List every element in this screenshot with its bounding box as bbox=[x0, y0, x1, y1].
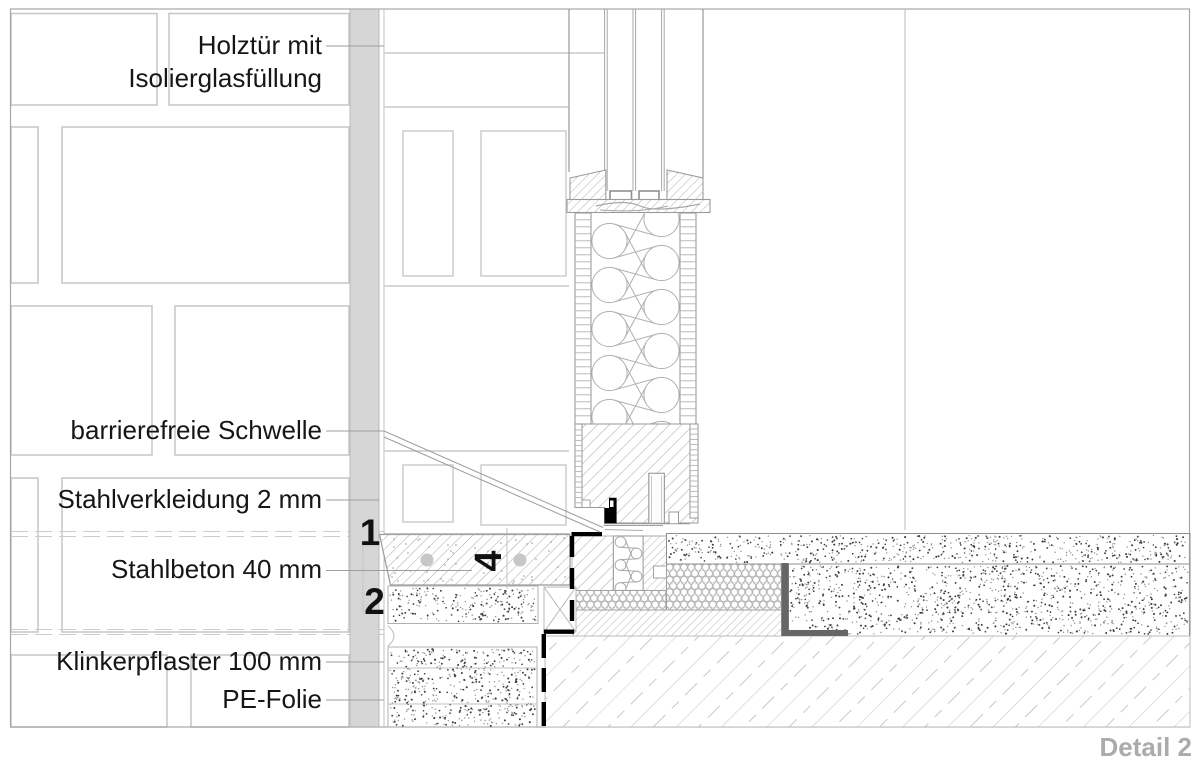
svg-text:1: 1 bbox=[360, 512, 381, 553]
svg-text:Detail 2: Detail 2 bbox=[1100, 732, 1193, 762]
svg-text:4: 4 bbox=[468, 550, 510, 571]
svg-text:Holztür mit: Holztür mit bbox=[198, 30, 323, 60]
svg-text:PE-Folie: PE-Folie bbox=[222, 684, 322, 714]
svg-text:Klinkerpflaster 100 mm: Klinkerpflaster 100 mm bbox=[56, 646, 322, 676]
svg-text:2: 2 bbox=[364, 581, 385, 622]
svg-text:Stahlverkleidung 2 mm: Stahlverkleidung 2 mm bbox=[58, 484, 322, 514]
svg-text:barrierefreie Schwelle: barrierefreie Schwelle bbox=[71, 415, 322, 445]
svg-text:Isolierglasfüllung: Isolierglasfüllung bbox=[128, 63, 322, 93]
svg-text:Stahlbeton 40 mm: Stahlbeton 40 mm bbox=[111, 554, 322, 584]
